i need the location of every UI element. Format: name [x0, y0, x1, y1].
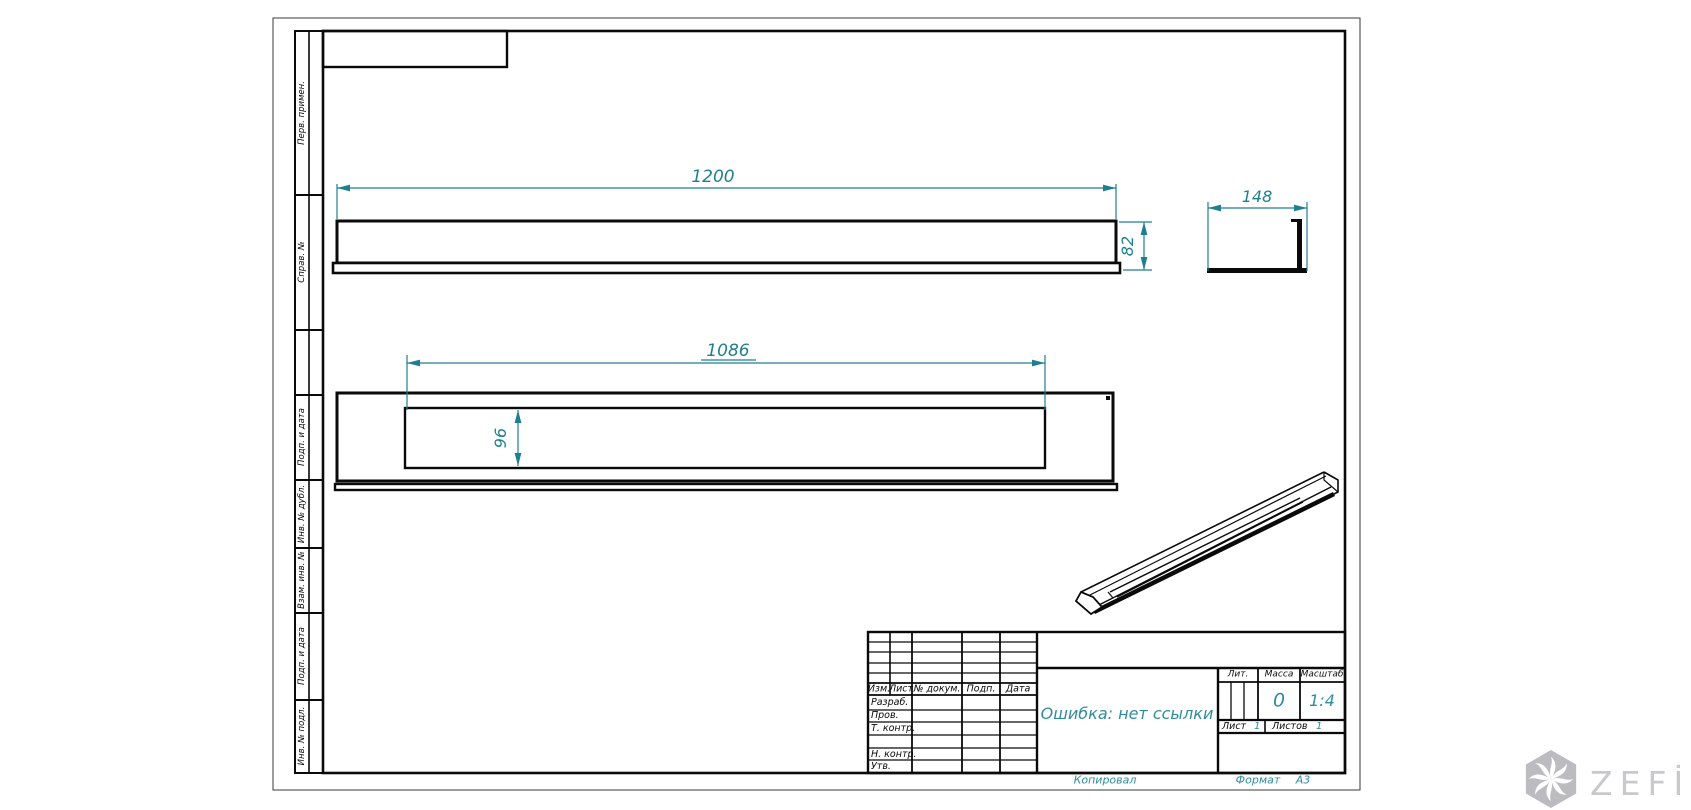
tb-scale-value: 1:4 — [1309, 693, 1335, 709]
dimension-1200: 1200 — [337, 167, 1116, 219]
margin-label-perv-primen: Перв. примен. — [296, 53, 308, 173]
tb-header-list: Лист — [889, 684, 913, 694]
tb-row-nkontr: Н. контр. — [871, 750, 917, 760]
dim-text-1200: 1200 — [691, 167, 734, 187]
drawing-sheet: 1200 82 148 1086 — [0, 0, 1691, 810]
tb-document-name: Ошибка: нет ссылки — [1041, 706, 1214, 722]
margin-label-sprav-no: Справ. № — [296, 202, 308, 322]
tb-row-tkontr: Т. контр. — [871, 724, 915, 734]
margin-label-inv-podl: Инв. № подл. — [296, 676, 308, 796]
tb-header-podp: Подп. — [967, 684, 996, 694]
tb-row-utv: Утв. — [871, 762, 891, 772]
tb-header-doc: № докум. — [914, 684, 961, 694]
dim-text-148: 148 — [1242, 187, 1273, 206]
isometric-view — [1076, 472, 1338, 614]
tb-sheets-label: Листов — [1272, 722, 1308, 732]
tb-lit-label: Лит. — [1228, 671, 1249, 680]
tb-row-razrab: Разраб. — [871, 698, 908, 708]
tb-row-prov: Пров. — [871, 711, 899, 721]
tb-header-data: Дата — [1006, 684, 1031, 694]
tb-sheets-value: 1 — [1316, 722, 1322, 732]
top-view — [335, 393, 1117, 490]
tb-sheet-label: Лист — [1222, 722, 1246, 732]
tb-mass-label: Масса — [1265, 671, 1294, 680]
zefire-watermark: ZEFİRE — [1522, 748, 1691, 810]
front-view — [333, 221, 1120, 273]
side-view — [1207, 219, 1307, 273]
tb-mass-value: 0 — [1273, 692, 1285, 711]
dimension-148: 148 — [1208, 187, 1307, 271]
drawing-canvas: 1200 82 148 1086 — [0, 0, 1691, 810]
zefire-brand-text: ZEFİRE — [1590, 764, 1691, 803]
tb-header-izm: Изм. — [868, 684, 890, 694]
top-stamp-box — [323, 31, 507, 67]
footer-format-value: А3 — [1296, 775, 1311, 786]
footer-copied-label: Копировал — [1074, 775, 1137, 786]
footer-format-label: Формат — [1236, 775, 1281, 786]
dimension-82: 82 — [1118, 222, 1152, 270]
tb-scale-label: Масштаб — [1301, 671, 1344, 680]
dim-text-1086: 1086 — [706, 341, 749, 361]
zefire-hexagon-logo-icon — [1522, 748, 1580, 810]
dim-text-96: 96 — [491, 428, 510, 448]
dim-text-82: 82 — [1118, 236, 1137, 256]
tb-sheet-value: 1 — [1254, 722, 1260, 732]
